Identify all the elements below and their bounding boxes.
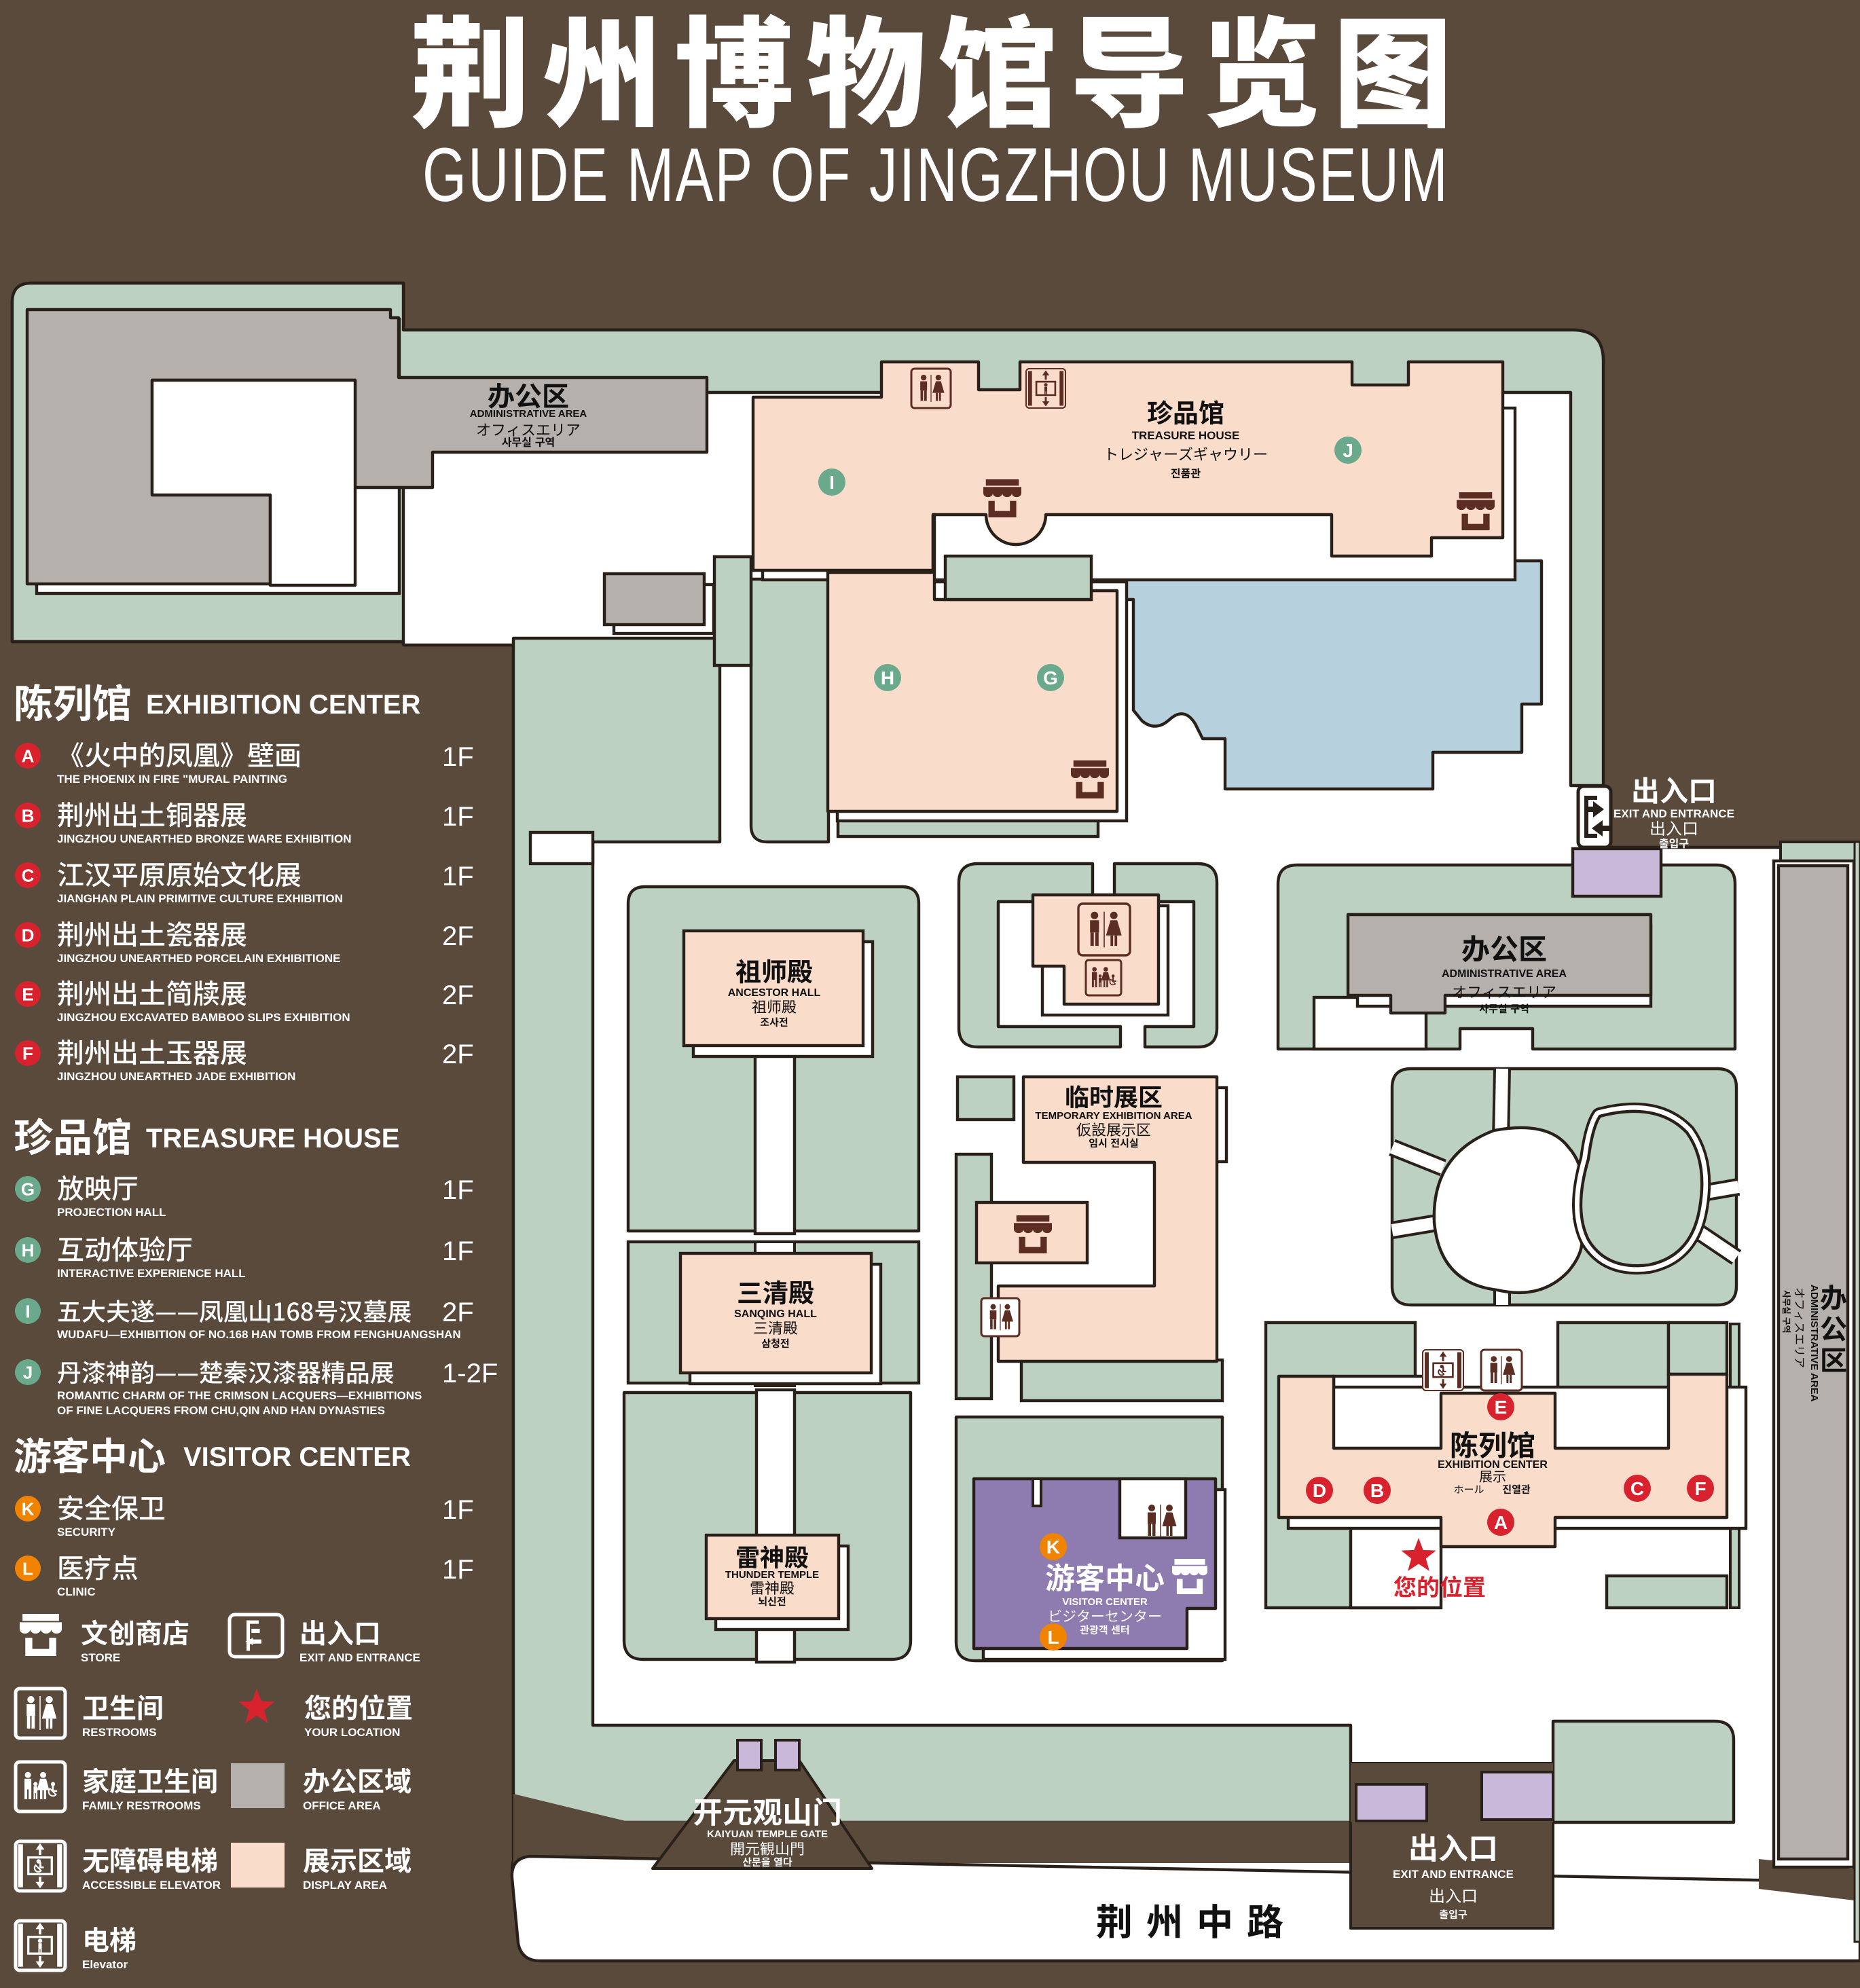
svg-text:1F: 1F [442,742,474,772]
svg-text:ANCESTOR HALL: ANCESTOR HALL [728,987,821,999]
svg-text:SANQING HALL: SANQING HALL [734,1308,817,1320]
svg-text:INTERACTIVE EXPERIENCE HALL: INTERACTIVE EXPERIENCE HALL [57,1267,246,1280]
svg-text:G: G [1043,667,1058,688]
svg-text:STORE: STORE [81,1651,120,1664]
svg-text:2F: 2F [442,980,474,1010]
svg-text:OF FINE LACQUERS FROM CHU,QIN: OF FINE LACQUERS FROM CHU,QIN AND HAN DY… [57,1404,385,1417]
svg-text:YOUR LOCATION: YOUR LOCATION [304,1726,400,1739]
svg-text:EXIT AND ENTRANCE: EXIT AND ENTRANCE [1613,807,1734,820]
svg-text:J: J [1343,440,1353,461]
svg-text:D: D [22,925,35,945]
svg-text:1-2F: 1-2F [442,1359,498,1388]
svg-text:EXIT AND ENTRANCE: EXIT AND ENTRANCE [299,1651,420,1664]
svg-text:B: B [22,805,35,826]
svg-text:JINGZHOU EXCAVATED BAMBOO SLIP: JINGZHOU EXCAVATED BAMBOO SLIPS EXHIBITI… [57,1011,350,1024]
svg-text:ADMINISTRATIVE AREA: ADMINISTRATIVE AREA [1808,1285,1820,1402]
svg-text:K: K [1046,1536,1060,1558]
svg-text:1F: 1F [442,802,474,832]
svg-text:DISPLAY AREA: DISPLAY AREA [303,1879,387,1892]
svg-text:C: C [1630,1478,1644,1499]
svg-text:K: K [22,1498,35,1519]
svg-text:VISITOR CENTER: VISITOR CENTER [183,1442,411,1472]
svg-text:RESTROOMS: RESTROOMS [82,1726,157,1739]
svg-text:SECURITY: SECURITY [57,1526,116,1539]
svg-text:JINGZHOU UNEARTHED BRONZE WARE: JINGZHOU UNEARTHED BRONZE WARE EXHIBITIO… [57,832,352,845]
svg-text:PROJECTION HALL: PROJECTION HALL [57,1206,166,1219]
svg-text:ADMINISTRATIVE AREA: ADMINISTRATIVE AREA [470,408,587,420]
svg-text:Elevator: Elevator [82,1958,128,1971]
svg-text:JINGZHOU UNEARTHED PORCELAIN E: JINGZHOU UNEARTHED PORCELAIN EXHIBITIONE [57,952,340,965]
svg-text:WUDAFU—EXHIBITION OF NO.168 HA: WUDAFU—EXHIBITION OF NO.168 HAN TOMB FRO… [57,1328,461,1341]
svg-text:2F: 2F [442,1297,474,1327]
svg-text:1F: 1F [442,1236,474,1266]
svg-text:E: E [1495,1397,1508,1418]
svg-text:EXHIBITION CENTER: EXHIBITION CENTER [146,690,421,720]
svg-text:E: E [22,984,33,1004]
svg-text:TREASURE HOUSE: TREASURE HOUSE [146,1124,399,1154]
svg-text:L: L [1047,1627,1059,1648]
svg-text:EXIT AND ENTRANCE: EXIT AND ENTRANCE [1393,1868,1514,1881]
svg-text:H: H [881,667,894,688]
svg-text:1F: 1F [442,1555,474,1585]
svg-text:I: I [829,472,835,493]
svg-text:I: I [25,1301,30,1321]
svg-text:FAMILY RESTROOMS: FAMILY RESTROOMS [82,1799,201,1812]
svg-text:THE PHOENIX IN FIRE "MURAL PAI: THE PHOENIX IN FIRE "MURAL PAINTING [57,773,287,786]
svg-text:GUIDE MAP OF JINGZHOU MUSEUM: GUIDE MAP OF JINGZHOU MUSEUM [422,132,1449,217]
svg-text:ADMINISTRATIVE AREA: ADMINISTRATIVE AREA [1442,968,1567,980]
svg-text:F: F [22,1043,33,1063]
svg-text:ROMANTIC CHARM OF THE CRIMSON: ROMANTIC CHARM OF THE CRIMSON LACQUERS—E… [57,1389,422,1402]
svg-text:B: B [1370,1480,1384,1501]
svg-text:JIANGHAN PLAIN PRIMITIVE CULTU: JIANGHAN PLAIN PRIMITIVE CULTURE EXHIBIT… [57,892,343,905]
svg-text:1F: 1F [442,862,474,891]
svg-text:G: G [21,1179,35,1199]
svg-text:ACCESSIBLE ELEVATOR: ACCESSIBLE ELEVATOR [82,1879,221,1892]
svg-text:TEMPORARY EXHIBITION AREA: TEMPORARY EXHIBITION AREA [1035,1110,1192,1122]
svg-text:2F: 2F [442,921,474,951]
svg-text:A: A [22,745,35,766]
svg-text:CLINIC: CLINIC [57,1585,96,1598]
svg-text:KAIYUAN TEMPLE GATE: KAIYUAN TEMPLE GATE [707,1828,828,1840]
svg-text:VISITOR CENTER: VISITOR CENTER [1062,1596,1148,1608]
svg-text:A: A [1494,1512,1508,1533]
svg-text:OFFICE AREA: OFFICE AREA [303,1799,381,1812]
svg-text:JINGZHOU UNEARTHED JADE EXHIBI: JINGZHOU UNEARTHED JADE EXHIBITION [57,1070,295,1083]
svg-text:EXHIBITION CENTER: EXHIBITION CENTER [1438,1459,1548,1471]
svg-text:2F: 2F [442,1039,474,1069]
svg-text:C: C [22,865,35,885]
svg-text:1F: 1F [442,1495,474,1525]
svg-text:L: L [22,1558,33,1579]
svg-text:H: H [22,1240,35,1260]
svg-text:J: J [23,1362,33,1382]
svg-text:D: D [1313,1480,1326,1501]
svg-text:THUNDER TEMPLE: THUNDER TEMPLE [725,1569,819,1581]
svg-text:F: F [1694,1478,1706,1499]
svg-text:1F: 1F [442,1175,474,1205]
svg-text:TREASURE HOUSE: TREASURE HOUSE [1132,429,1240,442]
